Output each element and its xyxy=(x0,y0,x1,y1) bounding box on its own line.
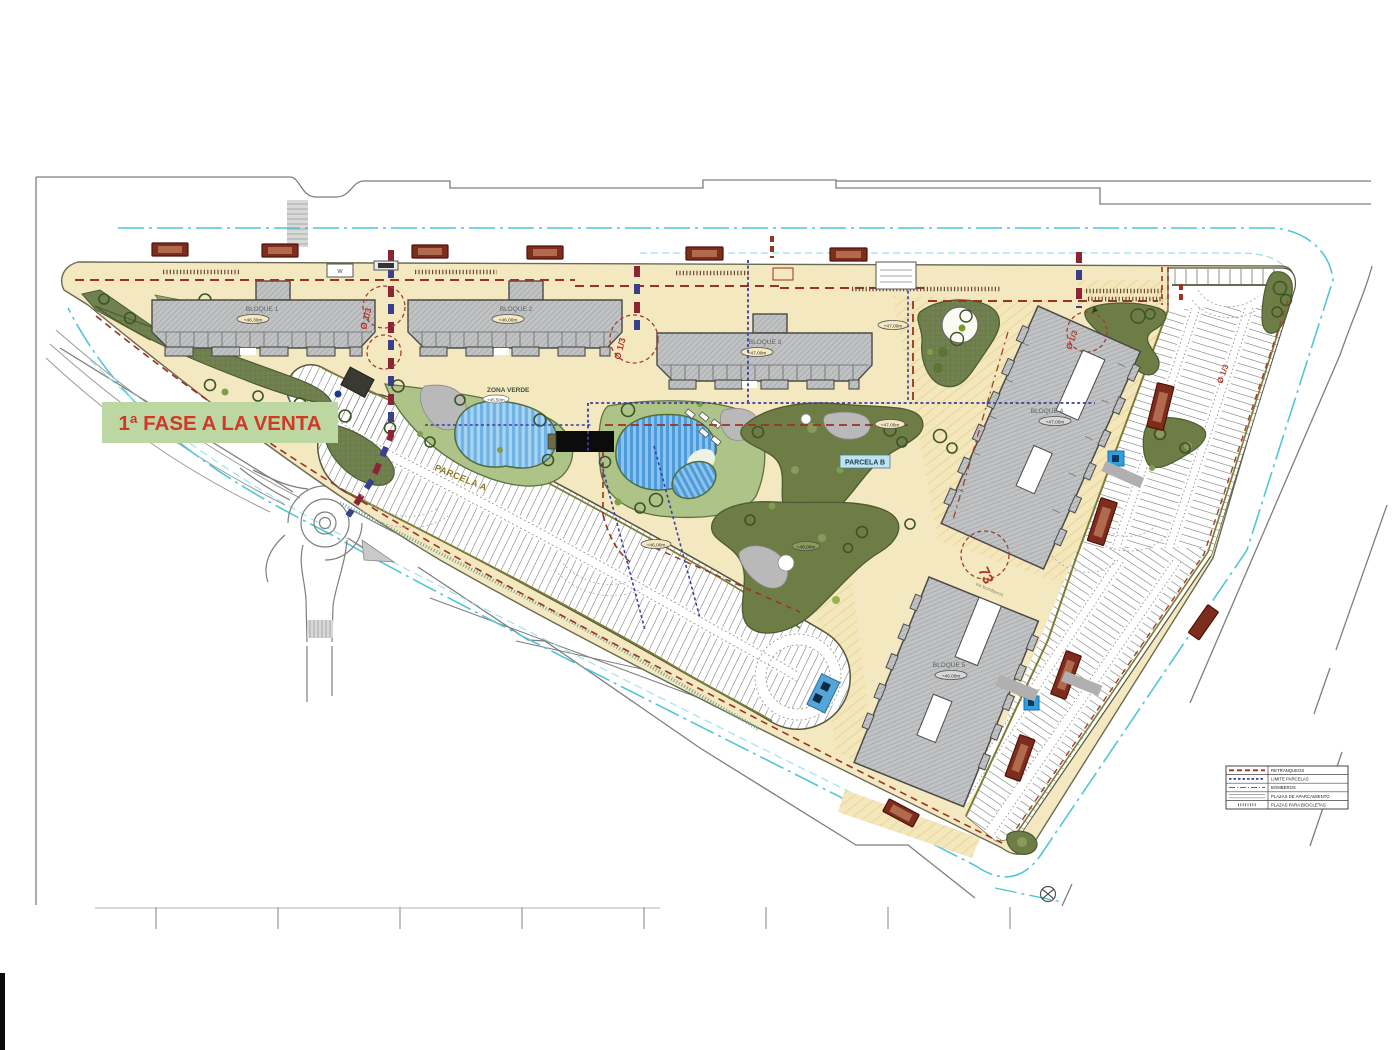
svg-text:BLOQUE 1: BLOQUE 1 xyxy=(246,306,279,313)
svg-text:+47,00m: +47,00m xyxy=(1046,420,1065,426)
svg-text:BOMBEROS: BOMBEROS xyxy=(1271,785,1296,790)
svg-text:+46,30m: +46,30m xyxy=(244,318,263,324)
svg-text:PLAZAS PARA BICICLETAS: PLAZAS PARA BICICLETAS xyxy=(1271,802,1326,807)
svg-text:ZONA VERDE: ZONA VERDE xyxy=(487,387,530,394)
svg-text:w: w xyxy=(336,268,343,275)
svg-text:+47,00m: +47,00m xyxy=(748,351,767,357)
svg-text:+46,00m: +46,00m xyxy=(797,545,816,551)
svg-text:BLOQUE 3: BLOQUE 3 xyxy=(749,339,782,346)
svg-text:BLOQUE 4: BLOQUE 4 xyxy=(1031,408,1064,415)
svg-text:+47,00m: +47,00m xyxy=(884,324,903,330)
svg-text:+47,00m: +47,00m xyxy=(881,423,900,429)
svg-text:LIMITE PARCELAS: LIMITE PARCELAS xyxy=(1271,777,1309,782)
svg-text:1ª FASE A LA VENTA: 1ª FASE A LA VENTA xyxy=(118,412,321,435)
svg-text:PLAZAS DE APARCAMIENTO: PLAZAS DE APARCAMIENTO xyxy=(1271,794,1330,799)
svg-text:RETRANQUEOS: RETRANQUEOS xyxy=(1271,768,1304,773)
svg-text:+45,50m: +45,50m xyxy=(487,398,505,403)
svg-text:+46,00m: +46,00m xyxy=(942,674,961,680)
svg-text:+46,00m: +46,00m xyxy=(499,318,518,324)
svg-text:+46,00m: +46,00m xyxy=(647,543,666,549)
svg-text:PARCELA B: PARCELA B xyxy=(845,460,885,467)
svg-text:BLOQUE 2: BLOQUE 2 xyxy=(500,306,533,313)
svg-text:BLOQUE 5: BLOQUE 5 xyxy=(933,662,966,669)
